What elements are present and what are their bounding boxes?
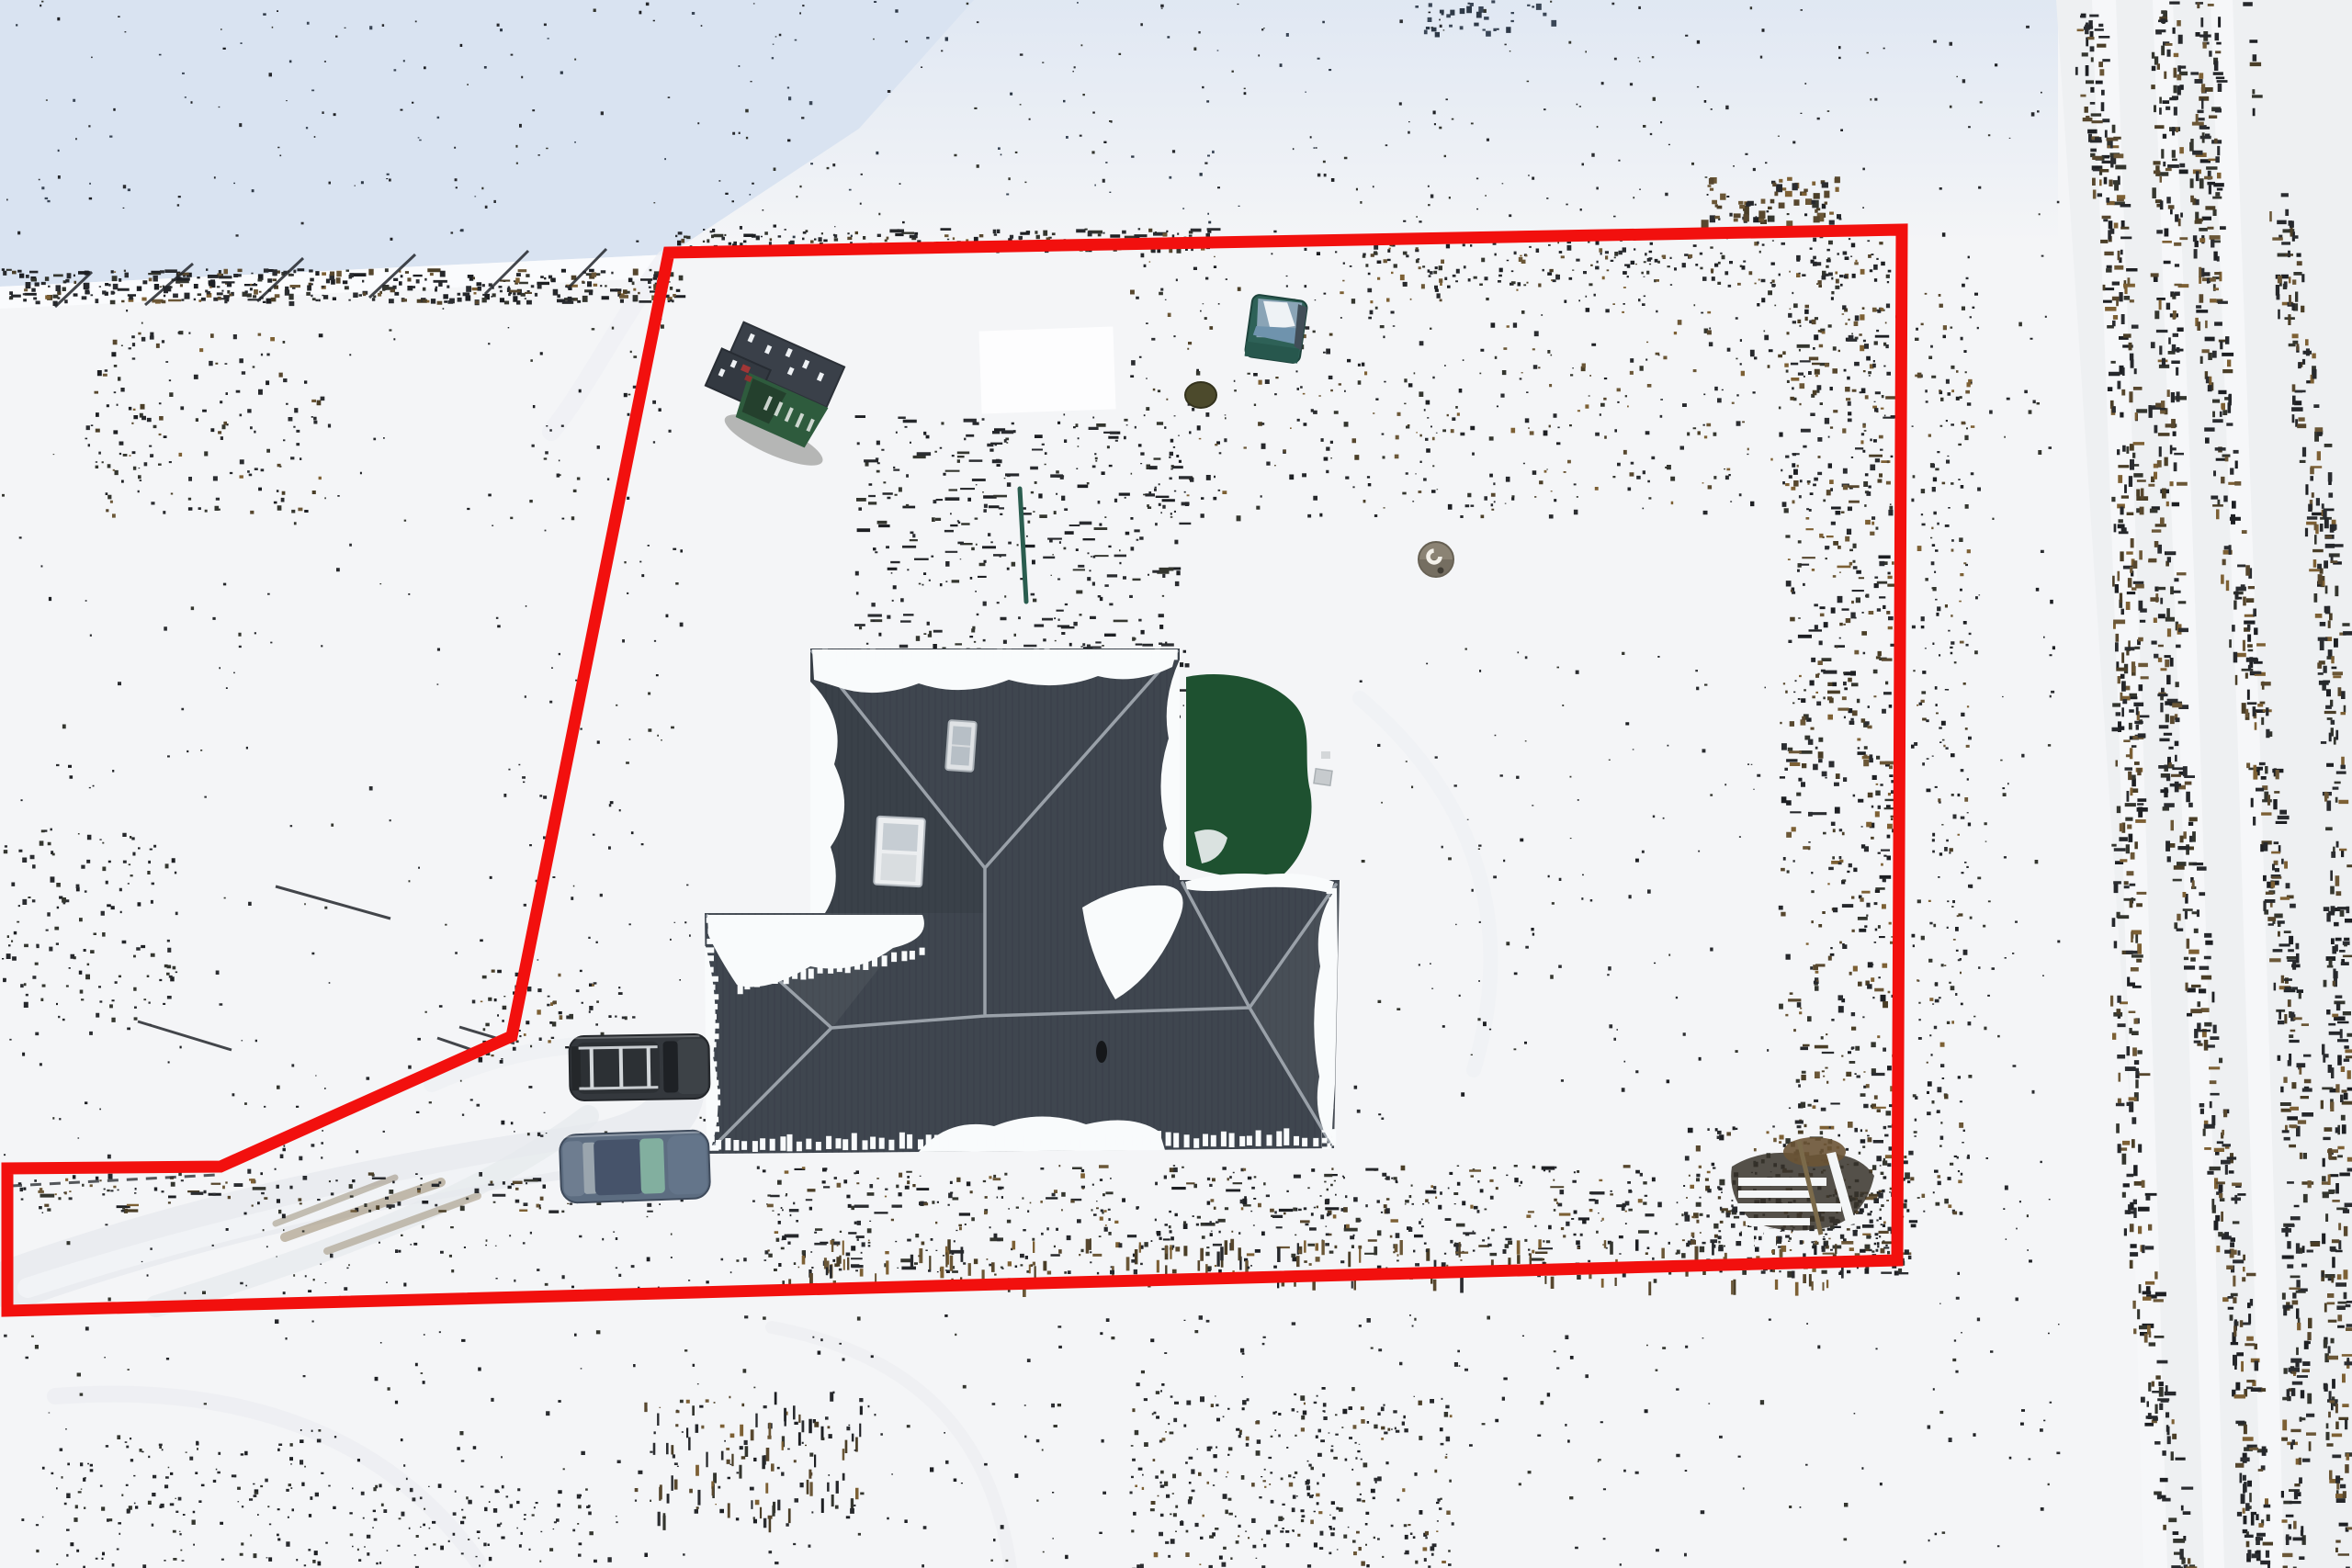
roof-vent [1096, 1041, 1107, 1063]
aerial-photo [0, 0, 2352, 1568]
well-lid [1419, 542, 1453, 577]
roof-window [874, 817, 925, 887]
sedan-car [560, 1130, 710, 1203]
shrub [1185, 382, 1216, 408]
skylight [945, 720, 977, 772]
teal-utility-vehicle [1245, 294, 1308, 364]
snow-pad [978, 326, 1115, 413]
suv-car [569, 1034, 709, 1101]
aerial-photo-stage [0, 0, 2352, 1568]
ice-tint-band [643, 0, 2058, 243]
